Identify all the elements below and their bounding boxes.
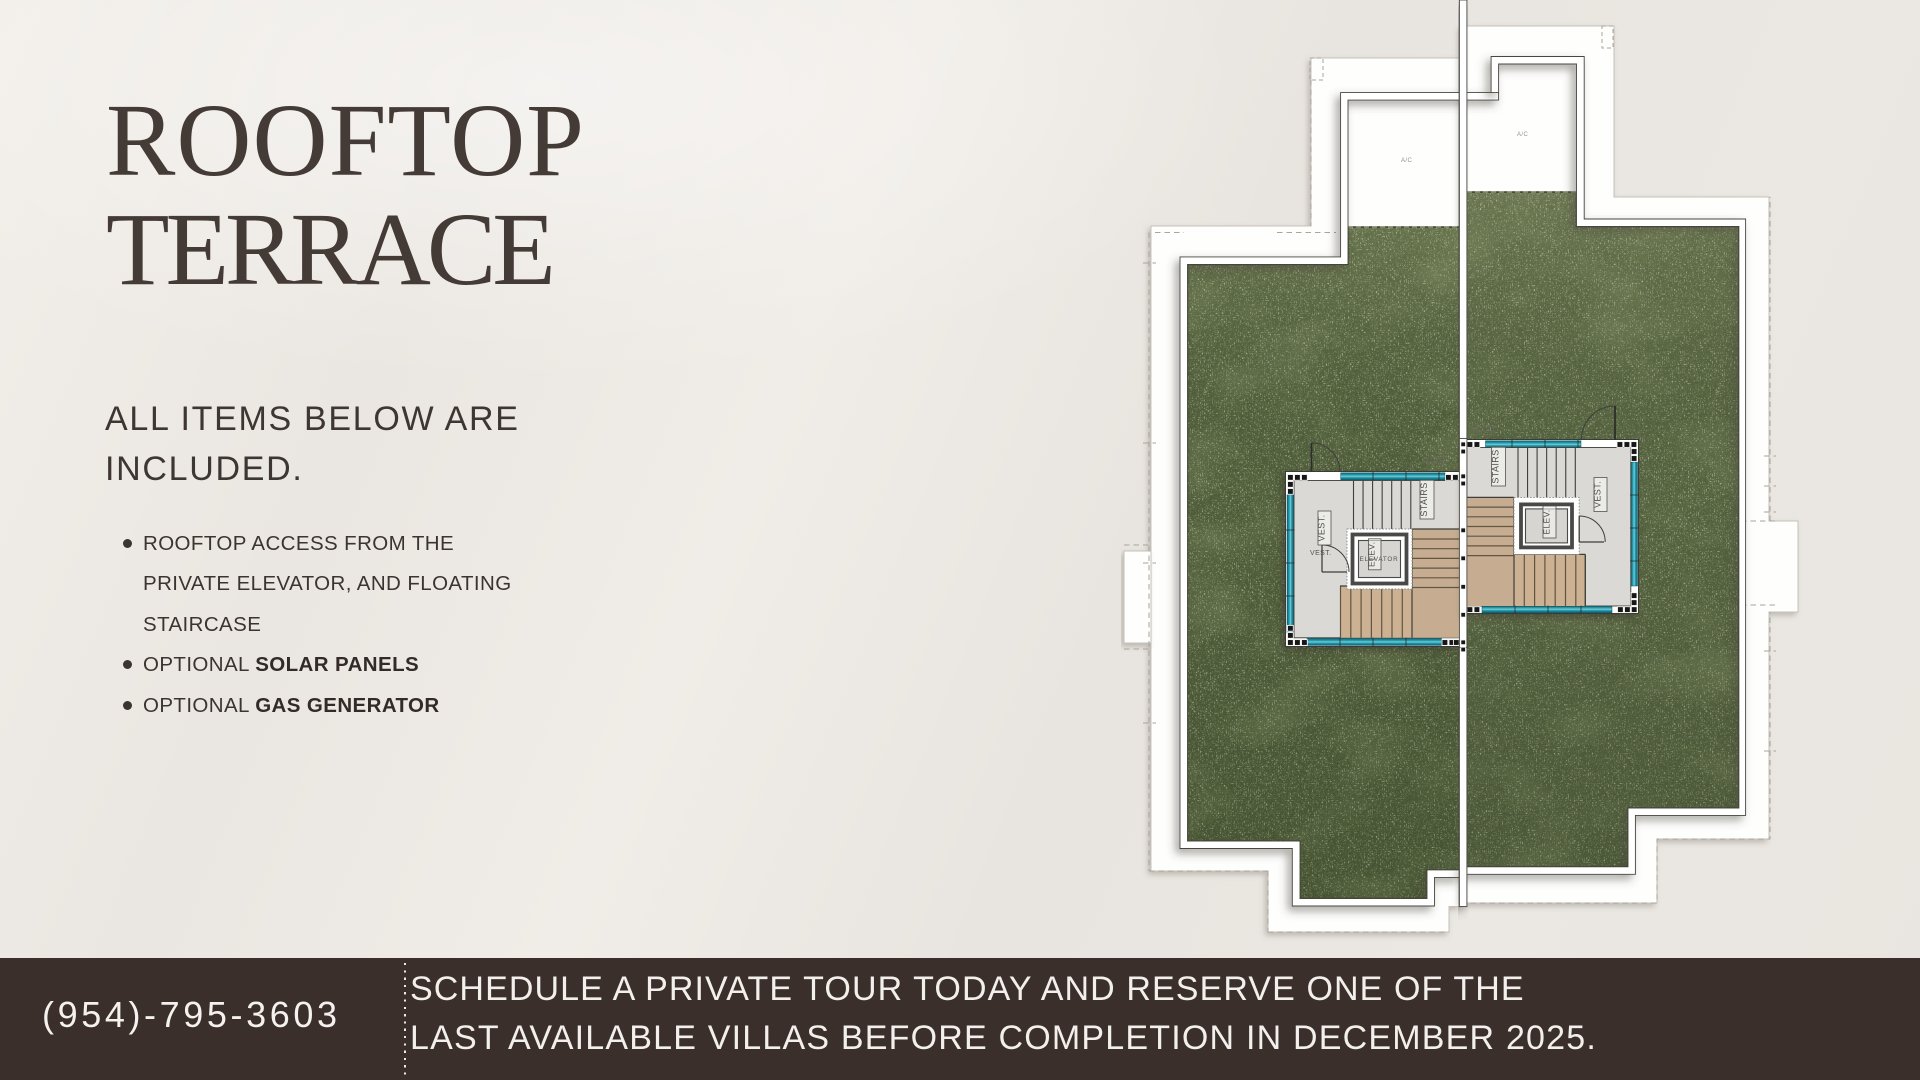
svg-text:A/C: A/C <box>1401 158 1412 164</box>
svg-text:VEST.: VEST. <box>1310 550 1331 557</box>
svg-text:A/C: A/C <box>1517 132 1528 138</box>
svg-text:ELEV.: ELEV. <box>1367 542 1377 567</box>
svg-text:ELEV.: ELEV. <box>1542 509 1552 534</box>
svg-text:STAIRS: STAIRS <box>1419 482 1429 516</box>
svg-text:STAIRS: STAIRS <box>1491 449 1501 483</box>
svg-text:ELEVATOR: ELEVATOR <box>1360 556 1399 563</box>
svg-text:VEST.: VEST. <box>1317 514 1327 541</box>
svg-text:BIBB: BIBB <box>1426 460 1438 465</box>
svg-text:BIBB: BIBB <box>1484 429 1496 434</box>
svg-text:VEST.: VEST. <box>1593 481 1603 508</box>
